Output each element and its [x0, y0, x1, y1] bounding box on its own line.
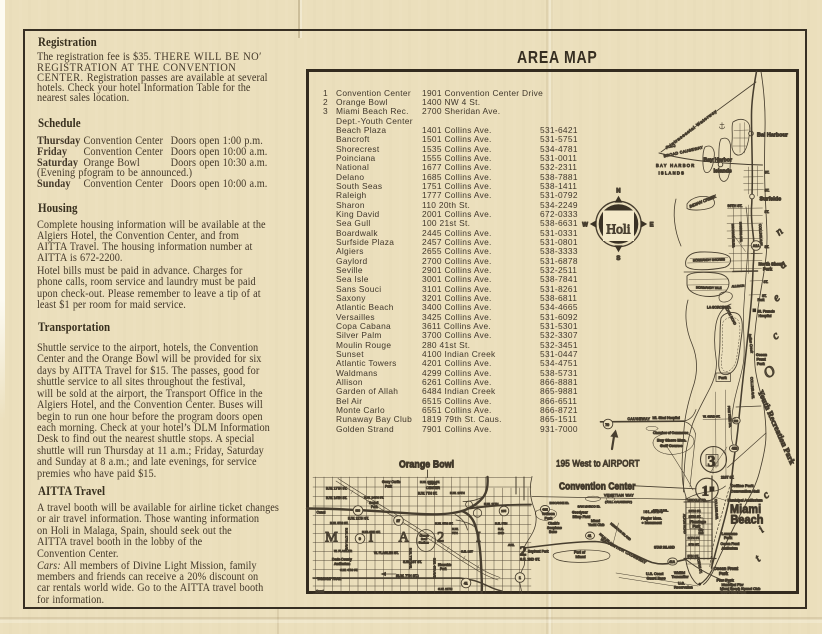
svg-text:8TH ST.: 8TH ST.	[689, 542, 700, 546]
svg-text:Golf Course: Golf Course	[660, 443, 683, 448]
svg-text:Surfside: Surfside	[760, 196, 782, 202]
svg-text:Gerry Curtis: Gerry Curtis	[382, 480, 401, 484]
svg-text:Pier Park: Pier Park	[717, 578, 735, 583]
svg-text:Port of: Port of	[574, 551, 586, 555]
svg-text:Mt. Sinai Hospital: Mt. Sinai Hospital	[653, 416, 680, 420]
svg-text:9: 9	[359, 537, 361, 541]
svg-text:Transmitter: Transmitter	[672, 575, 690, 579]
svg-text:E: E	[650, 223, 654, 229]
svg-text:SAN MARCO ID.: SAN MARCO ID.	[578, 504, 601, 508]
svg-text:41E: 41E	[542, 508, 548, 512]
svg-text:Stadium: Stadium	[419, 541, 430, 545]
svg-text:N.W. 7TH AVE.: N.W. 7TH AVE.	[409, 548, 413, 569]
svg-text:VENETIAN WAY: VENETIAN WAY	[604, 493, 634, 497]
svg-text:N.W. 11TH ST.: N.W. 11TH ST.	[348, 517, 369, 521]
svg-text:AVE.: AVE.	[508, 543, 515, 547]
svg-text:836: 836	[356, 509, 361, 513]
svg-text:Municipal Auditorium: Municipal Auditorium	[728, 499, 763, 503]
svg-text:(S.W. 7TH ST.): (S.W. 7TH ST.)	[396, 574, 419, 578]
svg-text:S.W. 4TH AVE.: S.W. 4TH AVE.	[433, 558, 437, 579]
svg-text:Ocean: Ocean	[756, 353, 767, 357]
svg-text:TAMIAMI TRAIL: TAMIAMI TRAIL	[317, 577, 341, 581]
svg-text:N.E. 5TH: N.E. 5TH	[495, 522, 507, 526]
svg-text:96TH ST.: 96TH ST.	[728, 204, 743, 208]
svg-text:N.W. 5TH ST.: N.W. 5TH ST.	[330, 521, 348, 525]
svg-text:ST.: ST.	[765, 171, 770, 175]
svg-text:CAUSEWAY: CAUSEWAY	[628, 417, 651, 421]
svg-text:N.W. 20TH ST.: N.W. 20TH ST.	[420, 480, 440, 484]
svg-text:BISCAYNE ID.: BISCAYNE ID.	[550, 501, 570, 505]
svg-text:Park: Park	[757, 362, 765, 366]
svg-text:Coral: Coral	[316, 590, 324, 594]
svg-text:BISCAYNE ELEM.: BISCAYNE ELEM.	[731, 224, 736, 248]
svg-text:Convention Hall: Convention Hall	[731, 489, 760, 493]
svg-text:5TH: 5TH	[452, 531, 458, 535]
svg-text:NORMANDY ISLE: NORMANDY ISLE	[696, 286, 722, 290]
svg-text:Dade County: Dade County	[332, 558, 352, 562]
svg-text:e: e	[771, 292, 782, 305]
svg-text:Orange Bowl: Orange Bowl	[399, 458, 454, 470]
svg-text:N.W. 14TH ST.: N.W. 14TH ST.	[364, 496, 384, 500]
svg-text:CENTER: CENTER	[426, 486, 440, 490]
svg-text:Canal: Canal	[317, 511, 326, 515]
svg-text:STAR ISLAND: STAR ISLAND	[654, 545, 675, 549]
svg-text:ALLISON: ALLISON	[732, 284, 745, 289]
svg-text:Park: Park	[545, 517, 553, 521]
svg-text:21ST ST.: 21ST ST.	[721, 476, 734, 480]
svg-text:2ND: 2ND	[498, 531, 505, 535]
svg-text:ST.: ST.	[764, 280, 769, 284]
svg-text:1: 1	[702, 484, 710, 500]
svg-text:Park: Park	[371, 505, 378, 509]
svg-text:A: A	[399, 530, 410, 546]
svg-text:11TH ST.: 11TH ST.	[688, 536, 700, 540]
svg-text:Intracoastal Waterway: Intracoastal Waterway	[669, 108, 718, 147]
svg-text:N.W. 7TH ST.: N.W. 7TH ST.	[418, 492, 437, 496]
svg-text:Auditorium: Auditorium	[334, 562, 350, 566]
svg-text:Park: Park	[385, 485, 392, 489]
svg-text:Bay Shore Mun.: Bay Shore Mun.	[657, 437, 686, 442]
svg-text:OCEAN CT.: OCEAN CT.	[696, 556, 703, 574]
svg-text:t: t	[753, 552, 764, 564]
svg-text:PINE TREE DR.: PINE TREE DR.	[727, 406, 733, 428]
svg-text:Yacht Club: Yacht Club	[588, 523, 604, 527]
svg-text:112: 112	[734, 419, 739, 423]
svg-text:N.W. 14TH ST.: N.W. 14TH ST.	[326, 496, 347, 500]
svg-text:Collins Park: Collins Park	[731, 483, 755, 488]
svg-text:ISLANDS: ISLANDS	[659, 171, 686, 176]
svg-text:W. 63RD ST.: W. 63RD ST.	[703, 415, 720, 419]
svg-text:Bay Harbor: Bay Harbor	[704, 158, 733, 164]
svg-text:79: 79	[605, 423, 609, 427]
svg-text:N.W. 17TH ST.: N.W. 17TH ST.	[326, 487, 347, 491]
svg-text:Indian Creek: Indian Creek	[748, 334, 754, 354]
svg-text:ST.: ST.	[765, 245, 770, 249]
svg-text:BAY HARBOR: BAY HARBOR	[656, 163, 695, 168]
svg-text:ST.: ST.	[765, 189, 770, 193]
svg-text:Holi: Holi	[606, 221, 630, 236]
svg-text:BELLE ISL.: BELLE ISL.	[653, 509, 669, 513]
svg-text:1: 1	[519, 576, 521, 580]
svg-text:Lummus: Lummus	[722, 532, 738, 536]
svg-text:Park: Park	[724, 536, 733, 540]
svg-text:Guard Base: Guard Base	[647, 576, 666, 580]
svg-text:S: S	[616, 256, 620, 262]
svg-text:n: n	[773, 225, 785, 238]
svg-text:ALTON ROAD: ALTON ROAD	[682, 514, 687, 535]
svg-text:ST.: ST.	[762, 294, 767, 298]
svg-text:S.W. 4TH ST.: S.W. 4TH ST.	[340, 568, 358, 572]
svg-text:Park: Park	[719, 571, 729, 576]
svg-text:Blimp Field: Blimp Field	[573, 515, 591, 519]
svg-text:41: 41	[464, 581, 468, 585]
svg-text:2: 2	[437, 530, 444, 546]
svg-text:HIBISCUS ISLAND: HIBISCUS ISLAND	[609, 522, 632, 542]
svg-text:HARDING AVE.: HARDING AVE.	[739, 222, 744, 243]
svg-text:S.E. 1ST: S.E. 1ST	[461, 550, 473, 554]
svg-text:Base: Base	[549, 530, 557, 534]
svg-text:41B: 41B	[732, 447, 739, 451]
svg-text:Convention Center: Convention Center	[559, 481, 636, 492]
svg-text:Hospital: Hospital	[759, 314, 772, 318]
svg-text:Youth Recreation Park: Youth Recreation Park	[756, 389, 797, 467]
svg-text:16TH ST.: 16TH ST.	[689, 509, 702, 513]
svg-text:I: I	[476, 530, 481, 546]
svg-text:3: 3	[708, 454, 716, 471]
svg-text:a: a	[777, 258, 789, 271]
svg-text:Bal Harbour: Bal Harbour	[757, 132, 789, 138]
svg-text:Reservation: Reservation	[674, 586, 693, 590]
svg-text:Hall: Hall	[699, 531, 704, 535]
svg-text:W: W	[582, 223, 588, 229]
svg-text:41A: 41A	[669, 560, 676, 564]
svg-text:Islands: Islands	[714, 168, 732, 174]
svg-text:Gov’t Cut Park: Gov’t Cut Park	[721, 591, 748, 594]
svg-text:c: c	[770, 330, 781, 343]
svg-text:ST.: ST.	[765, 210, 770, 214]
svg-text:COLLINS AVE.: COLLINS AVE.	[714, 499, 719, 520]
svg-text:S.W. 11TH: S.W. 11TH	[438, 587, 452, 591]
svg-text:Front: Front	[757, 357, 767, 361]
svg-text:Park: Park	[440, 567, 447, 571]
svg-text:195 West to AIRPORT: 195 West to AIRPORT	[556, 458, 640, 469]
svg-text:N.W. 10TH: N.W. 10TH	[450, 491, 465, 495]
svg-text:N.W. 5TH ST.: N.W. 5TH ST.	[435, 522, 453, 526]
svg-text:Miami: Miami	[576, 555, 586, 559]
svg-text:NORMANDY SHORES: NORMANDY SHORES	[693, 257, 725, 262]
svg-text:N.W. 3RD ST.: N.W. 3RD ST.	[362, 530, 381, 534]
svg-text:N: N	[616, 189, 620, 195]
svg-text:M: M	[325, 530, 338, 546]
svg-text:Auditorium: Auditorium	[722, 547, 738, 551]
svg-text:Park: Park	[763, 267, 773, 272]
svg-text:W. FLAGLER ST.: W. FLAGLER ST.	[374, 551, 399, 555]
svg-text:COLLINS AVE.: COLLINS AVE.	[750, 377, 756, 399]
svg-text:Park: Park	[719, 376, 728, 380]
svg-text:195: 195	[501, 509, 506, 513]
svg-text:41: 41	[588, 534, 592, 538]
svg-text:N.W. 11TH: N.W. 11TH	[484, 502, 498, 506]
svg-text:A1A: A1A	[753, 244, 760, 248]
svg-text:27: 27	[396, 519, 400, 523]
svg-text:(TOLL CAUSEWAY): (TOLL CAUSEWAY)	[605, 500, 632, 504]
svg-text:S.E. 2ND ST.: S.E. 2ND ST.	[520, 558, 540, 562]
svg-text:N.W. 17TH AVE.: N.W. 17TH AVE.	[345, 528, 349, 551]
svg-text:● Monument: ● Monument	[642, 521, 662, 525]
svg-text:W. FLAGLER: W. FLAGLER	[334, 549, 353, 553]
svg-text:Flagler Mem.: Flagler Mem.	[641, 517, 662, 521]
svg-text:Park: Park	[758, 298, 765, 302]
svg-text:(TOLL): (TOLL)	[665, 143, 675, 149]
